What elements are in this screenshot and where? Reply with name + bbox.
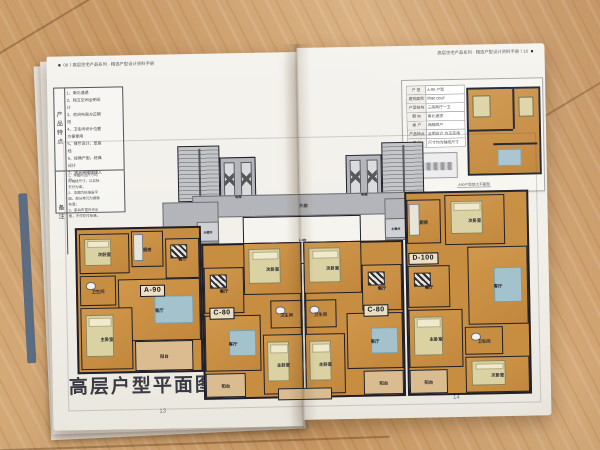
room-label: 外廊 <box>299 202 308 209</box>
room-label: 水暖井 <box>203 229 212 234</box>
inset-value: 两梯四户 <box>427 121 465 130</box>
room-label: 次卧室 <box>468 216 481 223</box>
room-label: 主卧室 <box>277 361 290 368</box>
room-label: 主卧室 <box>100 335 113 342</box>
area-d100-bed2a: 次卧室 <box>444 194 505 245</box>
inset-key: 户型结构 <box>407 104 426 113</box>
room-label: 餐厅 <box>178 255 187 262</box>
counter-icon <box>409 203 420 235</box>
area-stair-right <box>381 142 424 199</box>
unit-tag: C-80 <box>209 307 234 319</box>
feature-item: 4、卫生间设计位置方便使用 <box>67 126 104 141</box>
area-center-bay <box>278 387 332 400</box>
room-label: 水暖井 <box>391 226 400 231</box>
room-label: 主卧室 <box>429 335 442 342</box>
inset-key: 户 型 <box>407 86 426 95</box>
room-label: 阳台 <box>160 352 169 359</box>
photo-of-floorplan-booklet: { "colors": { "wood": "#c99e6b", "paper"… <box>0 0 600 450</box>
area-c80r-bath: 卫生间 <box>304 299 337 328</box>
inset-key: 朝 向 <box>407 112 426 121</box>
room-label: 餐厅 <box>220 287 229 294</box>
room-label: 阳台 <box>221 382 230 389</box>
area-corridor: 外廊 <box>192 192 414 218</box>
right-header: 高层住宅产品系列 · 精选户型设计资料手册丨10 ■ <box>437 47 535 55</box>
inset-key: 梯 户 <box>407 121 426 130</box>
area-d100-bed2b: 次卧室 <box>465 356 530 393</box>
header-text: 09丨高层住宅产品系列 · 精选户型设计资料手册 <box>63 62 154 68</box>
area-c80r-balcony: 阳台 <box>364 370 404 395</box>
area-c80l-balcony: 阳台 <box>206 373 246 398</box>
room-label: 厨房 <box>143 246 152 253</box>
header-square-icon: ■ <box>530 50 533 54</box>
area-c80r-bed2: 次卧室 <box>303 241 362 294</box>
room-label: 次卧室 <box>326 264 339 271</box>
area-c80l-bed1: 主卧室 <box>263 334 304 395</box>
area-a90-bed2: 次卧室 <box>79 233 130 274</box>
room-label: 电梯 <box>361 192 368 197</box>
room-label: 客厅 <box>371 337 380 344</box>
inset-value: 约90.00㎡ <box>426 94 464 103</box>
area-d100-bed1: 主卧室 <box>408 309 463 368</box>
area-d100-living: 客厅 <box>467 246 528 325</box>
room-label: 卫生间 <box>314 310 327 317</box>
room-label: 卫生间 <box>280 311 293 318</box>
area-c80l-bath: 卫生间 <box>270 300 303 329</box>
mini-wall <box>512 89 515 129</box>
room-label: 次卧室 <box>98 250 111 257</box>
floor-plan: 电梯电梯外廊水暖井水暖井上空次卧室厨房餐厅卫生间客厅主卧室阳台次卧室餐厅卫生间客… <box>73 140 534 407</box>
area-shaft-right: 水暖井 <box>385 218 407 238</box>
inset-value: A-90 户型 <box>426 85 464 94</box>
inset-key: 产品特点 <box>408 130 427 139</box>
area-c80l-bed2: 次卧室 <box>243 242 302 295</box>
unit-tag: C-80 <box>363 304 388 316</box>
inset-value: 三房两厅一卫 <box>426 103 464 112</box>
mini-wall <box>469 129 513 132</box>
unit-tag: A-90 <box>140 285 165 297</box>
room-label: 主卧室 <box>319 360 332 367</box>
area-stair-left <box>177 145 220 202</box>
room-label: 阳台 <box>379 379 388 386</box>
inset-table: 户 型A-90 户型建筑面积约90.00㎡户型结构三房两厅一卫朝 向南北通透梯 … <box>406 85 465 148</box>
page-number-left: 13 <box>159 409 166 415</box>
room-label: 客厅 <box>155 306 164 313</box>
room-label: 客厅 <box>229 340 238 347</box>
area-c80r-bed1: 主卧室 <box>305 333 346 394</box>
room-label: 餐厅 <box>378 284 387 291</box>
area-d100-balcony: 阳台 <box>410 369 448 394</box>
unit-tag: D-100 <box>408 252 438 265</box>
features-list: 1、南北通透2、独立空间全明设计3、房间布局方正朝阳4、卫生间设计位置方便使用5… <box>65 88 104 143</box>
room-label: 次卧室 <box>491 371 504 378</box>
inset-value: 南北通透 <box>426 112 464 121</box>
area-c80l-living: 客厅 <box>205 315 262 372</box>
room-label: 上空 <box>298 237 307 244</box>
area-a90-dining: 餐厅 <box>165 238 200 279</box>
feature-item: 3、房间布局方正朝阳 <box>67 111 104 126</box>
room-label: 卫生间 <box>91 287 104 294</box>
cover-edge <box>18 193 36 363</box>
room-label: 卫生间 <box>477 337 490 344</box>
bed-icon <box>518 96 533 116</box>
bed-icon <box>472 95 490 117</box>
room-label: 阳台 <box>424 378 433 385</box>
inset-key: 建筑面积 <box>407 95 426 104</box>
room-label: 餐厅 <box>425 283 434 290</box>
area-a90-balcony: 阳台 <box>135 340 194 371</box>
room-label: 次卧室 <box>266 265 279 272</box>
area-d100-kitchen: 厨房 <box>406 199 441 244</box>
left-header: ■ 09丨高层住宅产品系列 · 精选户型设计资料手册 <box>57 60 155 68</box>
room-label: 客厅 <box>494 282 503 289</box>
area-a90-bath: 卫生间 <box>80 276 117 307</box>
room-label: 厨房 <box>419 218 428 225</box>
room-label: 电梯 <box>235 194 242 199</box>
feature-item: 2、独立空间全明设计 <box>67 97 104 112</box>
inset-value: 全明设计·方正实用 <box>427 129 465 138</box>
area-d100-dining: 餐厅 <box>408 265 451 308</box>
header-square-icon: ■ <box>58 64 61 68</box>
area-a90-kitchen: 厨房 <box>131 231 164 268</box>
area-a90-bed1: 主卧室 <box>80 307 133 370</box>
area-c80r-living: 客厅 <box>346 312 403 369</box>
header-text: 高层住宅产品系列 · 精选户型设计资料手册丨10 <box>437 50 528 56</box>
booklet: ■ 09丨高层住宅产品系列 · 精选户型设计资料手册 产品特点 1、南北通透2、… <box>32 33 564 439</box>
area-d100-bath: 卫生间 <box>465 326 504 355</box>
